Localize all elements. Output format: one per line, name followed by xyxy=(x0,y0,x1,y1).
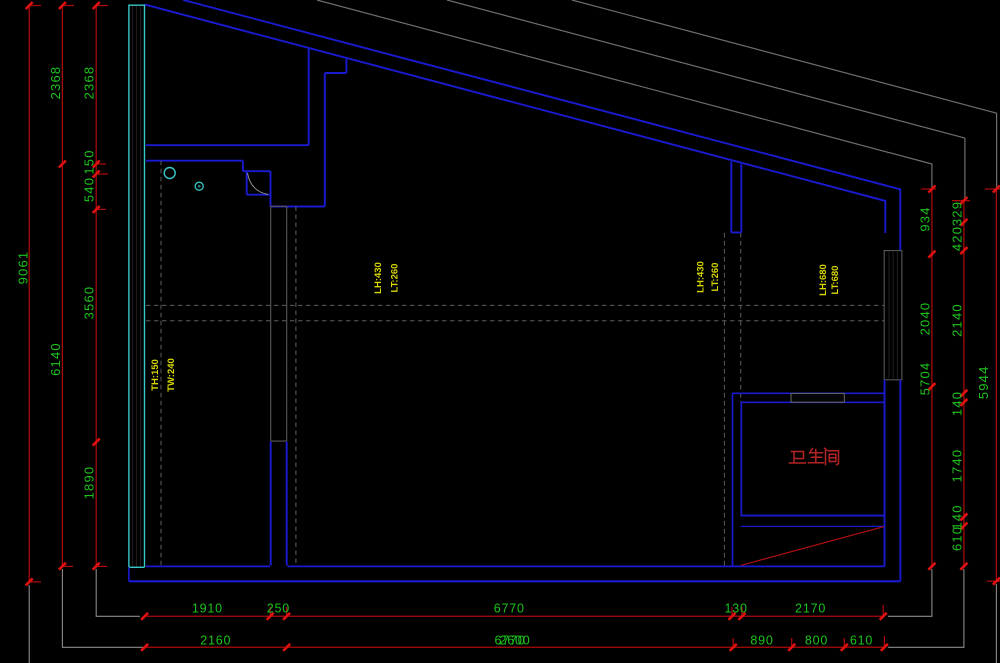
svg-text:LH:680: LH:680 xyxy=(818,264,829,296)
svg-text:250: 250 xyxy=(267,602,290,616)
svg-text:1740: 1740 xyxy=(950,449,965,483)
svg-text:2140: 2140 xyxy=(950,303,965,337)
svg-text:LT:260: LT:260 xyxy=(710,263,721,292)
svg-text:2170: 2170 xyxy=(795,602,826,616)
svg-text:610: 610 xyxy=(950,526,965,551)
svg-text:150: 150 xyxy=(82,149,97,174)
svg-text:2368: 2368 xyxy=(48,66,63,100)
svg-text:5944: 5944 xyxy=(976,365,991,399)
svg-text:LH:430: LH:430 xyxy=(696,261,707,293)
svg-text:420: 420 xyxy=(950,226,965,251)
svg-text:2160: 2160 xyxy=(200,634,231,648)
svg-text:540: 540 xyxy=(82,177,97,202)
svg-text:2368: 2368 xyxy=(82,66,97,100)
svg-text:LT:260: LT:260 xyxy=(390,264,401,293)
svg-text:130: 130 xyxy=(724,602,747,616)
svg-text:140: 140 xyxy=(950,391,965,416)
svg-text:2040: 2040 xyxy=(918,302,933,336)
svg-text:TH:150: TH:150 xyxy=(150,359,161,391)
svg-text:610: 610 xyxy=(850,634,873,648)
svg-text:1910: 1910 xyxy=(192,602,223,616)
svg-text:LT:680: LT:680 xyxy=(830,266,841,295)
svg-text:934: 934 xyxy=(918,206,933,231)
svg-text:2600: 2600 xyxy=(499,634,530,648)
svg-text:6140: 6140 xyxy=(48,342,63,376)
svg-text:3560: 3560 xyxy=(82,286,97,320)
svg-text:1890: 1890 xyxy=(82,466,97,500)
svg-text:TW:240: TW:240 xyxy=(166,358,177,392)
svg-text:800: 800 xyxy=(805,634,828,648)
svg-text:LH:430: LH:430 xyxy=(373,262,384,294)
svg-text:329: 329 xyxy=(950,201,965,226)
svg-text:6770: 6770 xyxy=(494,602,525,616)
svg-text:890: 890 xyxy=(750,634,773,648)
svg-text:5704: 5704 xyxy=(918,362,933,396)
svg-text:9061: 9061 xyxy=(16,251,31,285)
